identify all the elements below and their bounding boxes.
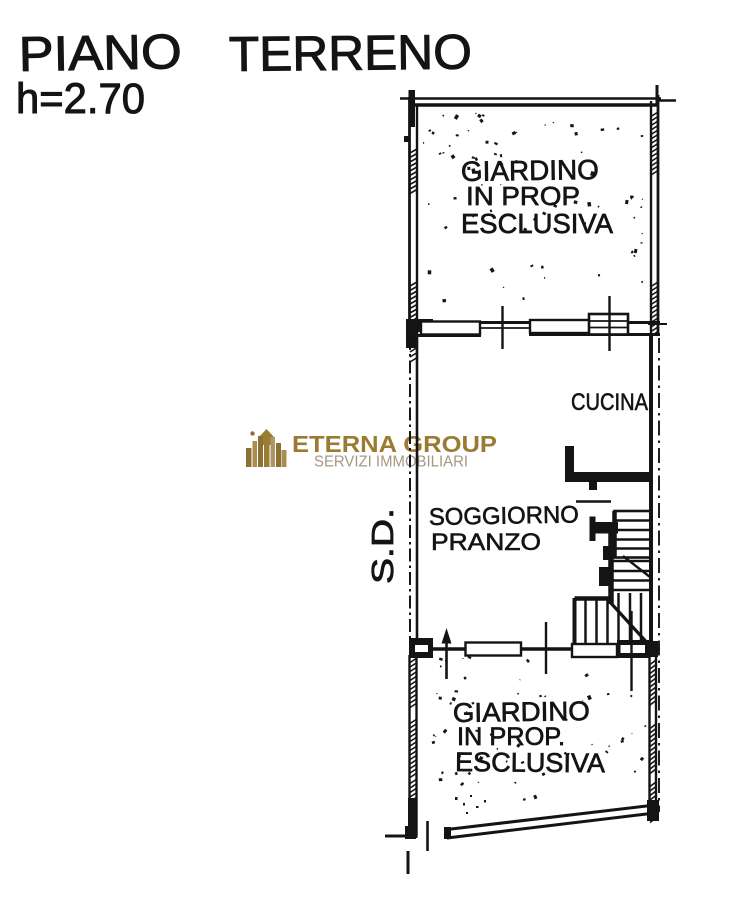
svg-text:ESCLUSIVA: ESCLUSIVA bbox=[455, 747, 605, 778]
svg-text:CUCINA: CUCINA bbox=[571, 389, 648, 416]
svg-text:TERRENO: TERRENO bbox=[229, 25, 473, 82]
svg-text:S.D.: S.D. bbox=[365, 508, 400, 584]
svg-text:h=2.70: h=2.70 bbox=[16, 75, 145, 123]
svg-text:PIANO: PIANO bbox=[18, 25, 182, 82]
svg-text:IN PROP: IN PROP bbox=[466, 181, 580, 211]
svg-text:SOGGIORNO: SOGGIORNO bbox=[429, 501, 579, 531]
svg-text:SERVIZI IMMOBILIARI: SERVIZI IMMOBILIARI bbox=[314, 454, 468, 471]
svg-text:ESCLUSIVA: ESCLUSIVA bbox=[461, 208, 613, 239]
svg-text:PRANZO: PRANZO bbox=[431, 529, 541, 556]
